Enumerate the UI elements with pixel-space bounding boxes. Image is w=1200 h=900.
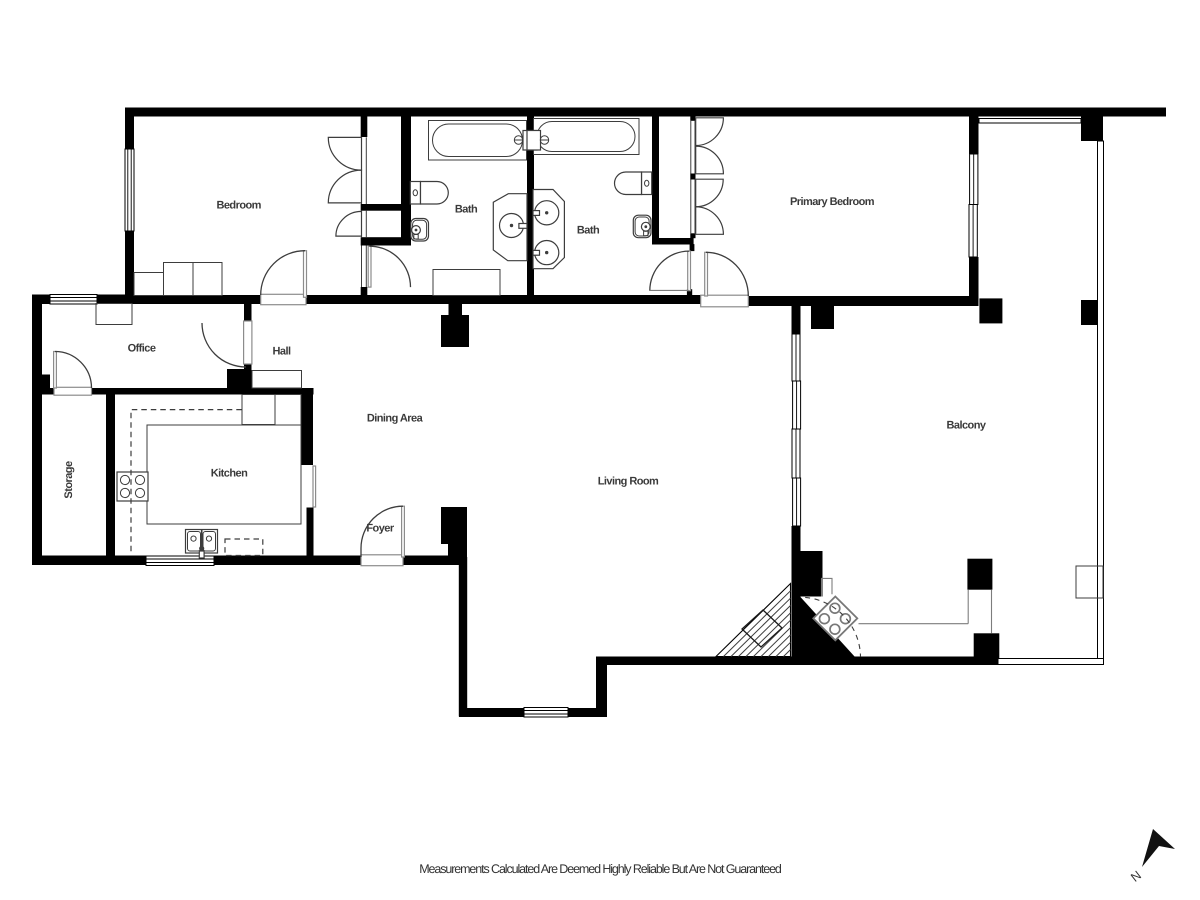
svg-text:Living Room: Living Room [598,476,659,488]
svg-text:Primary Bedroom: Primary Bedroom [790,196,875,208]
svg-text:Bedroom: Bedroom [216,200,261,212]
svg-text:Hall: Hall [273,346,291,358]
svg-text:Bath: Bath [455,204,478,216]
svg-text:Balcony: Balcony [947,420,987,432]
svg-text:Kitchen: Kitchen [211,468,248,480]
svg-text:Office: Office [128,343,156,355]
svg-text:Storage: Storage [63,461,75,499]
svg-text:Dining Area: Dining Area [367,413,424,425]
svg-text:Measurements Calculated Are De: Measurements Calculated Are Deemed Highl… [419,862,782,876]
svg-text:Bath: Bath [577,225,600,237]
svg-text:Foyer: Foyer [366,523,394,535]
